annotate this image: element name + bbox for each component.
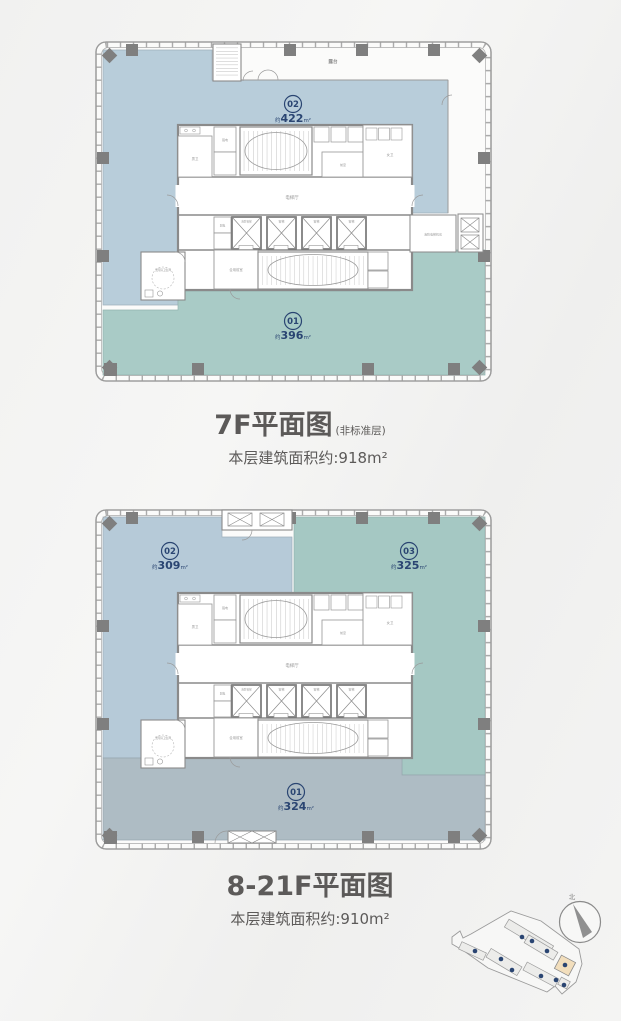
plan-7f-title: 7F平面图(非标准层) [214, 410, 385, 441]
plan-7f: 消防电梯机房 露台 02 约422m² 01 约396m² 7F平面图(非标准层… [96, 42, 491, 467]
zone-number: 02 [287, 100, 299, 110]
zone-number: 01 [287, 317, 299, 327]
zone-number: 01 [290, 788, 302, 798]
site-key-map: 北 [452, 893, 601, 994]
plan-8f: 02 约309m² 03 约325m² 01 约324m² 8-21F平面图 本… [96, 510, 491, 928]
plan-8f-area-text: 本层建筑面积约:910m² [230, 910, 389, 928]
plan-8f-title: 8-21F平面图 [226, 871, 393, 902]
floor-plan-canvas: 男卫 强电 前室 女卫 [0, 0, 621, 1021]
floor-plan-sheet: 男卫 强电 前室 女卫 [0, 0, 621, 1021]
zone-number: 03 [403, 547, 415, 557]
fire-elevator-machine-room-label: 消防电梯机房 [424, 232, 442, 237]
north-compass-icon: 北 [560, 893, 601, 943]
right-service-shaft [458, 214, 483, 252]
zone-number: 02 [164, 547, 176, 557]
north-label: 北 [569, 893, 576, 901]
escape-stair-shaft [213, 44, 241, 81]
terrace-label: 露台 [328, 58, 338, 65]
plan-7f-area-text: 本层建筑面积约:918m² [228, 449, 387, 467]
